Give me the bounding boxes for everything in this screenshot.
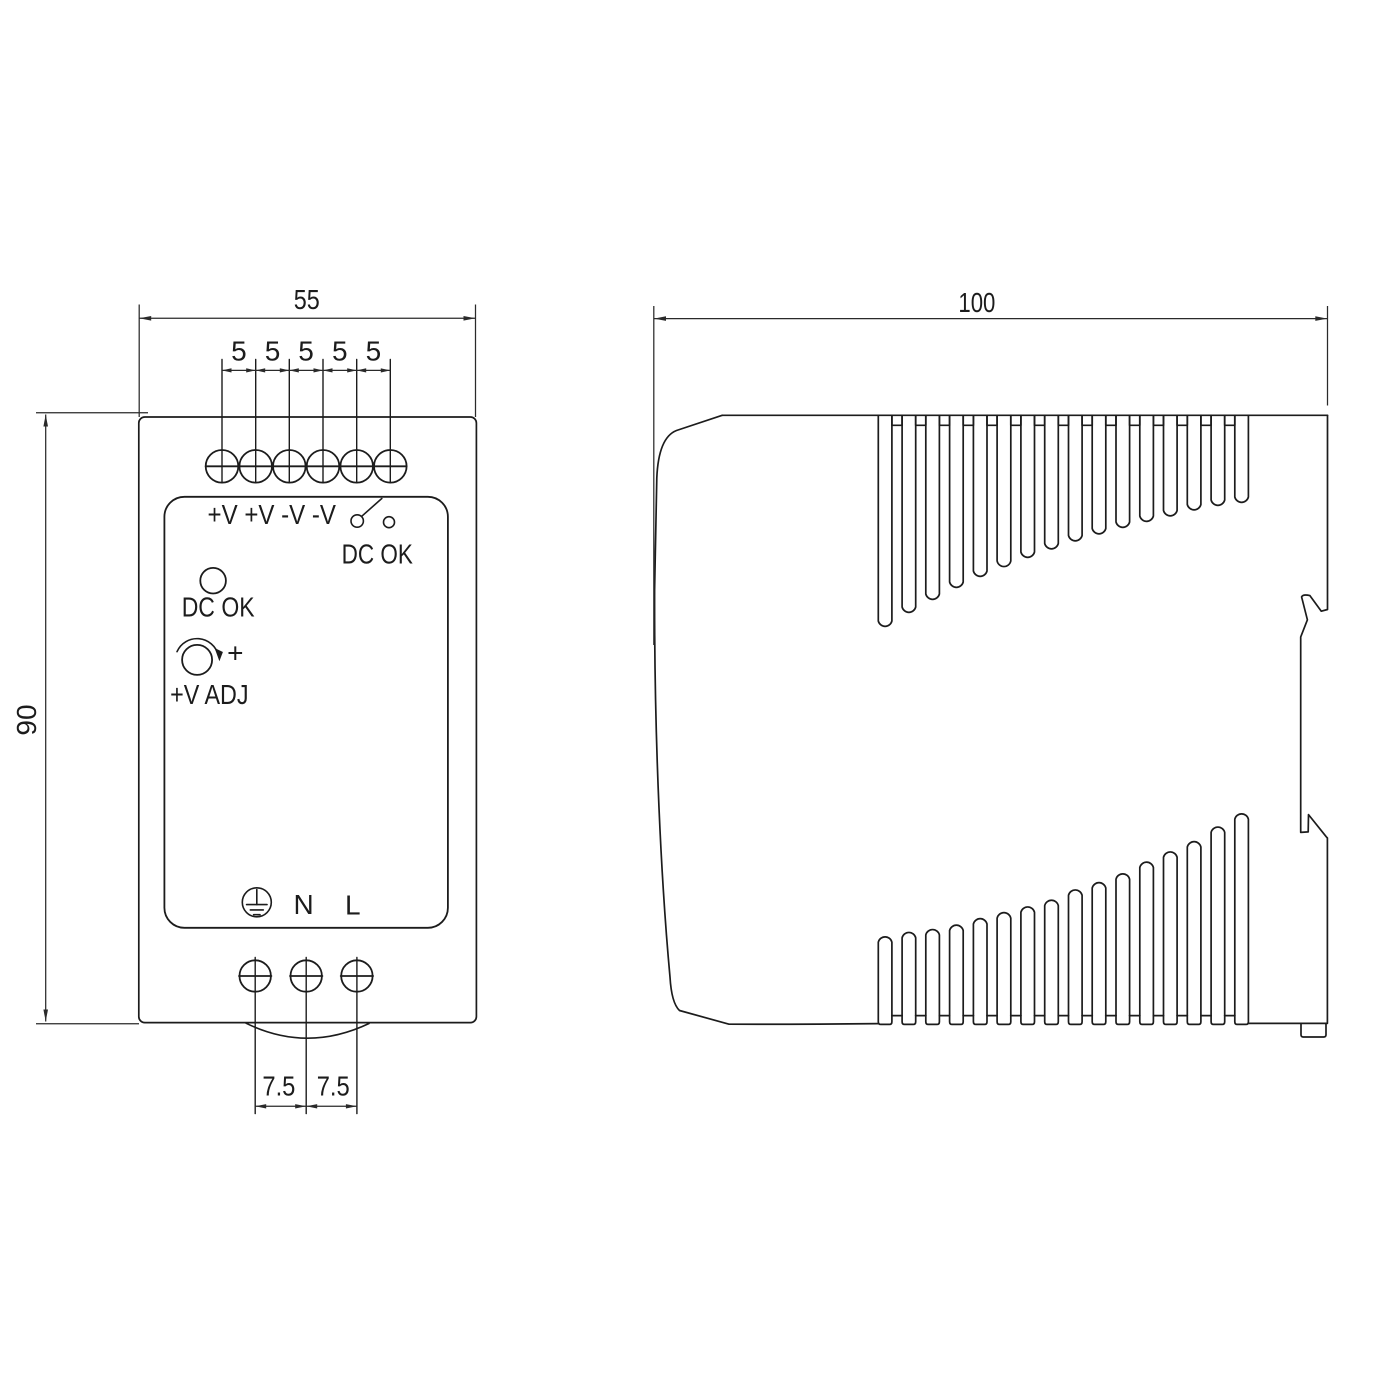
svg-text:7.5: 7.5 (262, 1070, 295, 1101)
svg-text:5: 5 (366, 336, 382, 367)
svg-text:N: N (293, 889, 313, 920)
svg-text:5: 5 (298, 336, 314, 367)
svg-text:7.5: 7.5 (317, 1070, 350, 1101)
svg-text:55: 55 (294, 284, 320, 315)
svg-text:5: 5 (265, 336, 281, 367)
svg-text:+: + (227, 637, 243, 668)
svg-text:5: 5 (231, 336, 247, 367)
svg-text:90: 90 (11, 704, 42, 735)
svg-text:+V ADJ: +V ADJ (170, 679, 249, 710)
svg-text:100: 100 (958, 287, 995, 318)
svg-text:5: 5 (332, 336, 348, 367)
svg-text:+V +V -V -V: +V +V -V -V (208, 499, 337, 530)
svg-text:DC OK: DC OK (182, 592, 255, 623)
svg-text:DC OK: DC OK (342, 538, 414, 569)
svg-text:L: L (345, 889, 361, 920)
